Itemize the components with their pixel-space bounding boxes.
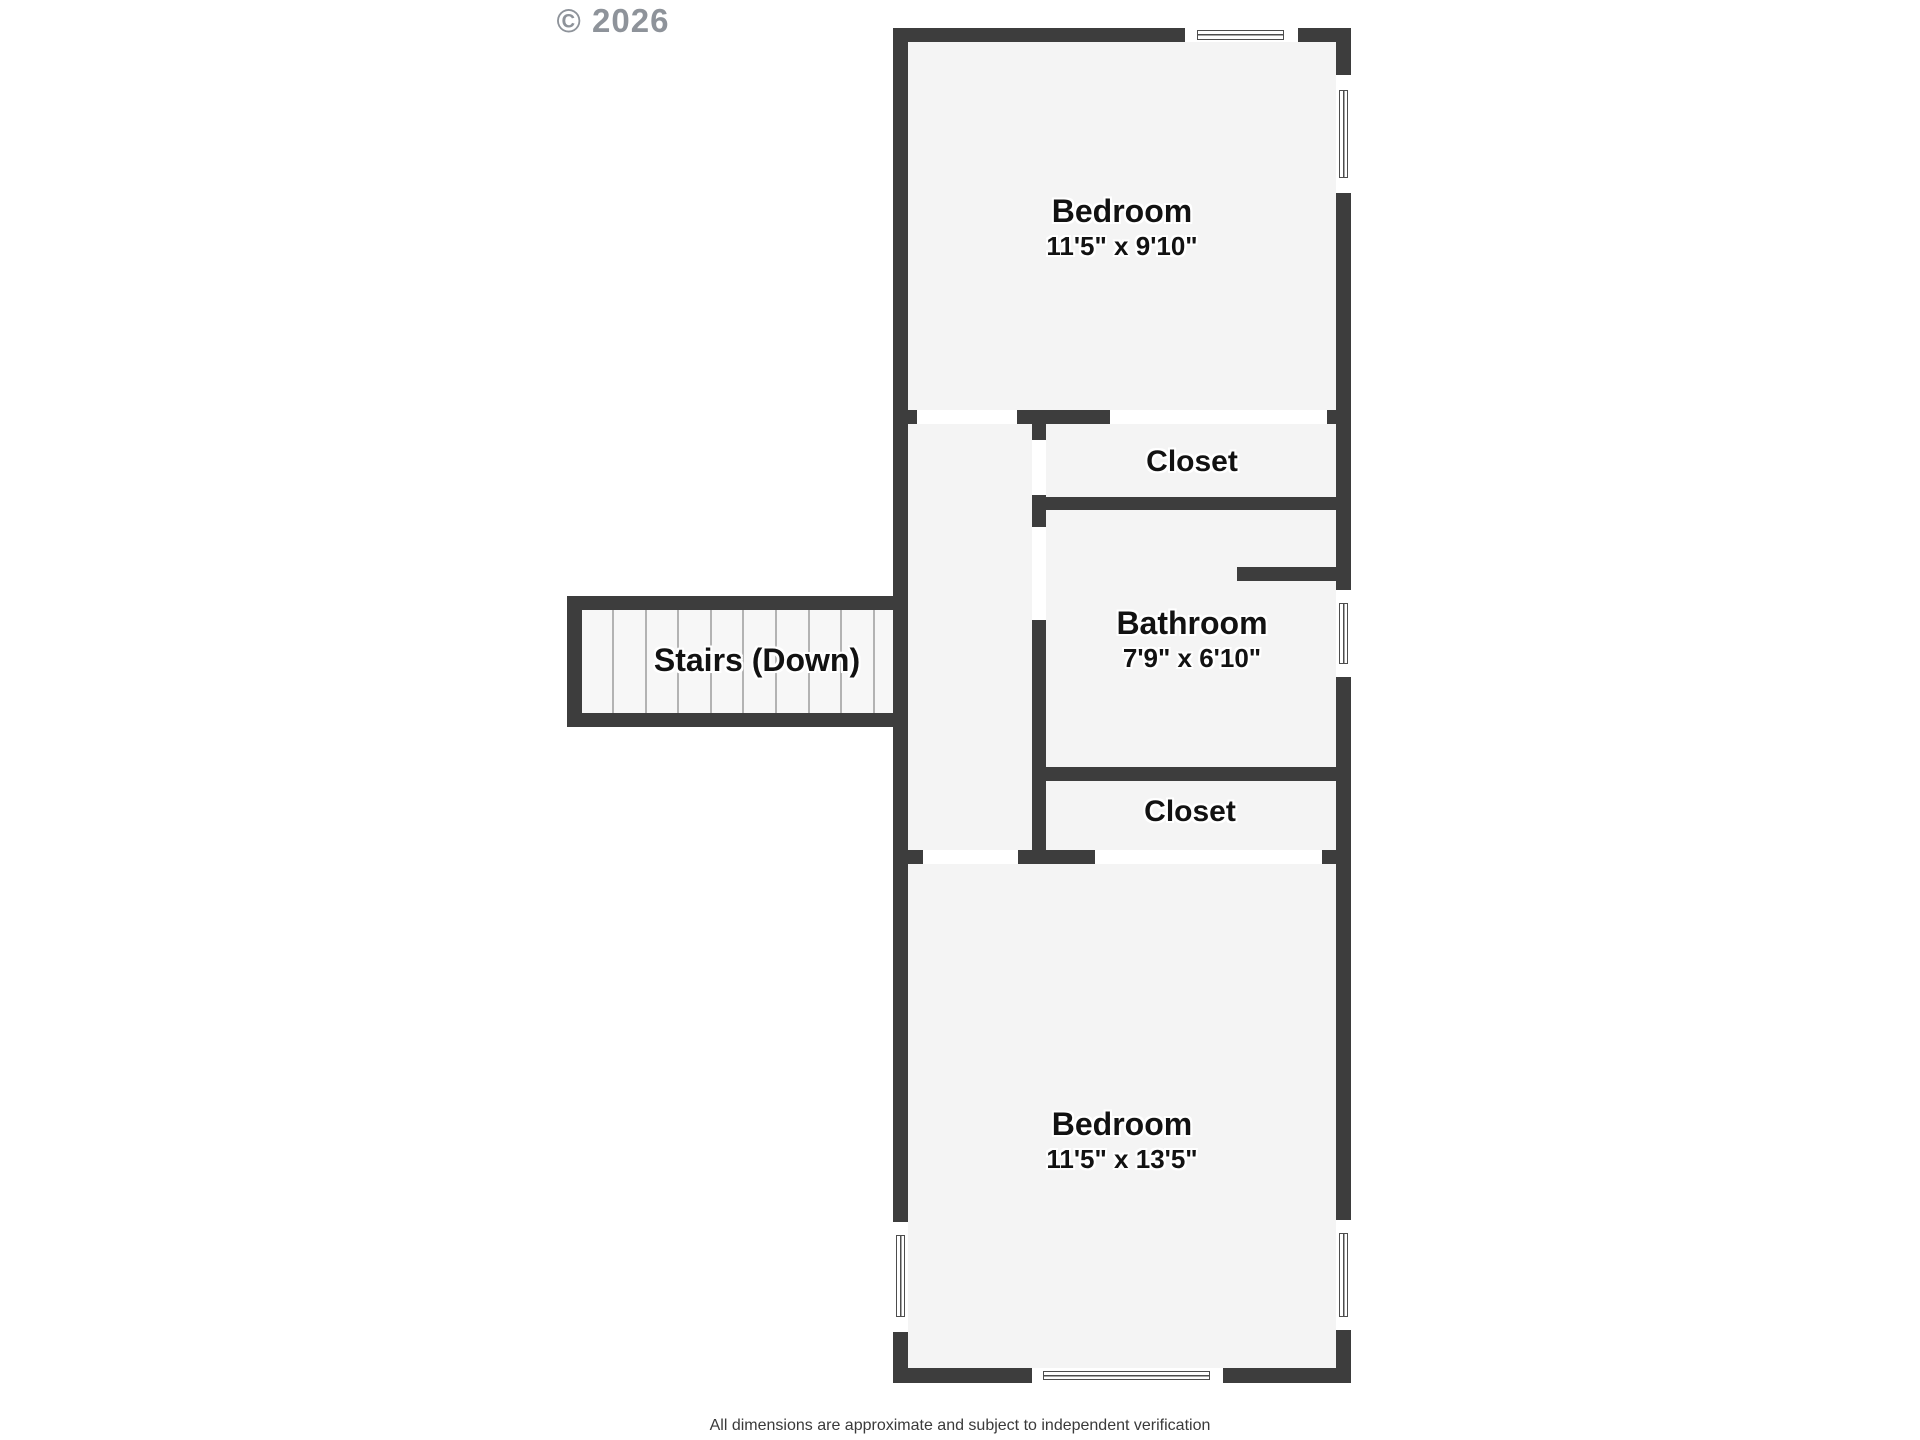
wall-bedroom-top-bottom-seg3	[1327, 410, 1351, 424]
window-glazing	[1197, 30, 1284, 40]
wall-stairs-top	[567, 596, 908, 610]
wall-mid-bottom-seg3	[1322, 850, 1351, 864]
window-glazing	[1339, 1233, 1348, 1317]
window-bedroom-bottom-east	[1336, 1220, 1351, 1330]
door-opening-bathroom	[1032, 527, 1046, 620]
window-bedroom-top-east	[1336, 75, 1351, 193]
door-opening-bedroom-top	[917, 410, 1017, 424]
wall-mid-bottom-seg1	[893, 850, 923, 864]
door-opening-hall-closet	[1032, 440, 1046, 495]
room-dimensions: 11'5" x 13'5"	[1046, 1143, 1197, 1175]
wall-closet-top-bottom	[1032, 497, 1351, 510]
stair-tread-line	[873, 610, 875, 713]
copyright-text: © 2026	[557, 2, 670, 40]
disclaimer-text: All dimensions are approximate and subje…	[0, 1417, 1920, 1435]
room-dimensions: 11'5" x 9'10"	[1046, 230, 1197, 262]
wall-divider-seg3	[1032, 620, 1046, 864]
wall-bathroom-bottom	[1032, 767, 1351, 781]
door-opening-closet-bottom	[1095, 850, 1322, 864]
wall-divider-seg1	[1032, 410, 1046, 440]
label-closet-top: Closet	[1146, 445, 1238, 479]
wall-stairs-left	[567, 596, 582, 727]
label-bedroom-bottom: Bedroom 11'5" x 13'5"	[1046, 1105, 1197, 1175]
room-name: Closet	[1144, 795, 1236, 829]
window-glazing	[1339, 90, 1348, 178]
window-bedroom-bottom-south	[1032, 1368, 1223, 1383]
window-bedroom-top-north	[1185, 28, 1298, 42]
window-bathroom-east	[1336, 590, 1351, 677]
stair-tread-line	[645, 610, 647, 713]
door-opening-closet-top	[1110, 410, 1327, 424]
label-bathroom: Bathroom 7'9" x 6'10"	[1116, 604, 1267, 674]
stair-tread-line	[612, 610, 614, 713]
window-glazing	[1043, 1371, 1210, 1380]
window-glazing	[1339, 603, 1348, 664]
room-dimensions: 7'9" x 6'10"	[1116, 642, 1267, 674]
room-name: Stairs (Down)	[654, 642, 860, 678]
wall-right	[1336, 28, 1351, 1383]
wall-bedroom-top-bottom-seg1	[893, 410, 917, 424]
door-opening-bedroom-bottom	[923, 850, 1018, 864]
room-name: Bathroom	[1116, 604, 1267, 642]
wall-bedroom-top-bottom-seg2	[1017, 410, 1110, 424]
room-hallway	[908, 424, 1032, 850]
label-closet-bottom: Closet	[1144, 795, 1236, 829]
room-name: Closet	[1146, 445, 1238, 479]
wall-stairs-bottom	[567, 713, 908, 727]
wall-left	[893, 28, 908, 1383]
wall-bathroom-stub	[1237, 567, 1351, 581]
window-bedroom-bottom-west	[893, 1222, 908, 1332]
label-bedroom-top: Bedroom 11'5" x 9'10"	[1046, 192, 1197, 262]
wall-mid-bottom-seg2	[1018, 850, 1095, 864]
floorplan-page: { "copyright": "© 2026", "footer": "All …	[0, 0, 1920, 1440]
label-stairs: Stairs (Down)	[654, 642, 860, 678]
room-name: Bedroom	[1046, 192, 1197, 230]
window-glazing	[896, 1235, 905, 1317]
room-name: Bedroom	[1046, 1105, 1197, 1143]
